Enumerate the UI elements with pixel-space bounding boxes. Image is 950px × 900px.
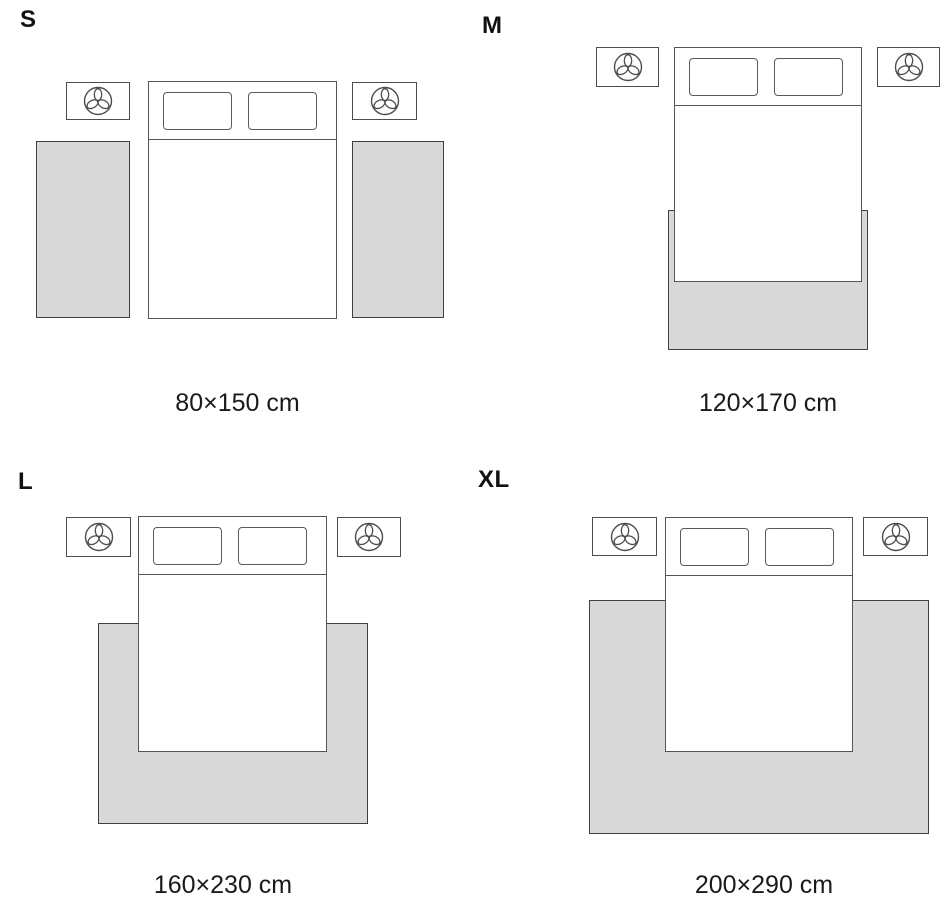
nightstand bbox=[337, 517, 401, 557]
nightstand bbox=[66, 82, 130, 120]
size-option-m: M bbox=[475, 0, 950, 450]
bed bbox=[148, 81, 337, 319]
size-option-l: L bbox=[0, 450, 475, 900]
bed bbox=[138, 516, 327, 752]
pillow bbox=[765, 528, 834, 566]
pillow bbox=[774, 58, 843, 96]
plant-icon bbox=[613, 52, 643, 82]
rug bbox=[352, 141, 444, 318]
rug-size-guide: S bbox=[0, 0, 950, 900]
size-letter: L bbox=[18, 468, 33, 496]
plant-icon bbox=[370, 86, 400, 116]
nightstand bbox=[352, 82, 417, 120]
plant-icon bbox=[894, 52, 924, 82]
pillow bbox=[248, 92, 317, 130]
size-letter: S bbox=[20, 6, 37, 34]
nightstand bbox=[66, 517, 131, 557]
pillow bbox=[689, 58, 758, 96]
size-label: 120×170 cm bbox=[568, 389, 950, 418]
nightstand bbox=[592, 517, 657, 556]
bed bbox=[665, 517, 853, 752]
plant-icon bbox=[354, 522, 384, 552]
plant-icon bbox=[610, 522, 640, 552]
size-letter: XL bbox=[478, 466, 510, 494]
nightstand bbox=[863, 517, 928, 556]
rug bbox=[36, 141, 130, 318]
bed bbox=[674, 47, 862, 282]
size-option-xl: XL bbox=[475, 450, 950, 900]
size-option-s: S bbox=[0, 0, 475, 450]
size-letter: M bbox=[482, 12, 503, 40]
size-label: 80×150 cm bbox=[0, 389, 475, 418]
plant-icon bbox=[84, 522, 114, 552]
nightstand bbox=[877, 47, 940, 87]
size-label: 160×230 cm bbox=[23, 871, 423, 900]
pillow bbox=[238, 527, 307, 565]
plant-icon bbox=[83, 86, 113, 116]
nightstand bbox=[596, 47, 659, 87]
size-label: 200×290 cm bbox=[564, 871, 950, 900]
plant-icon bbox=[881, 522, 911, 552]
pillow bbox=[153, 527, 222, 565]
pillow bbox=[163, 92, 232, 130]
pillow bbox=[680, 528, 749, 566]
